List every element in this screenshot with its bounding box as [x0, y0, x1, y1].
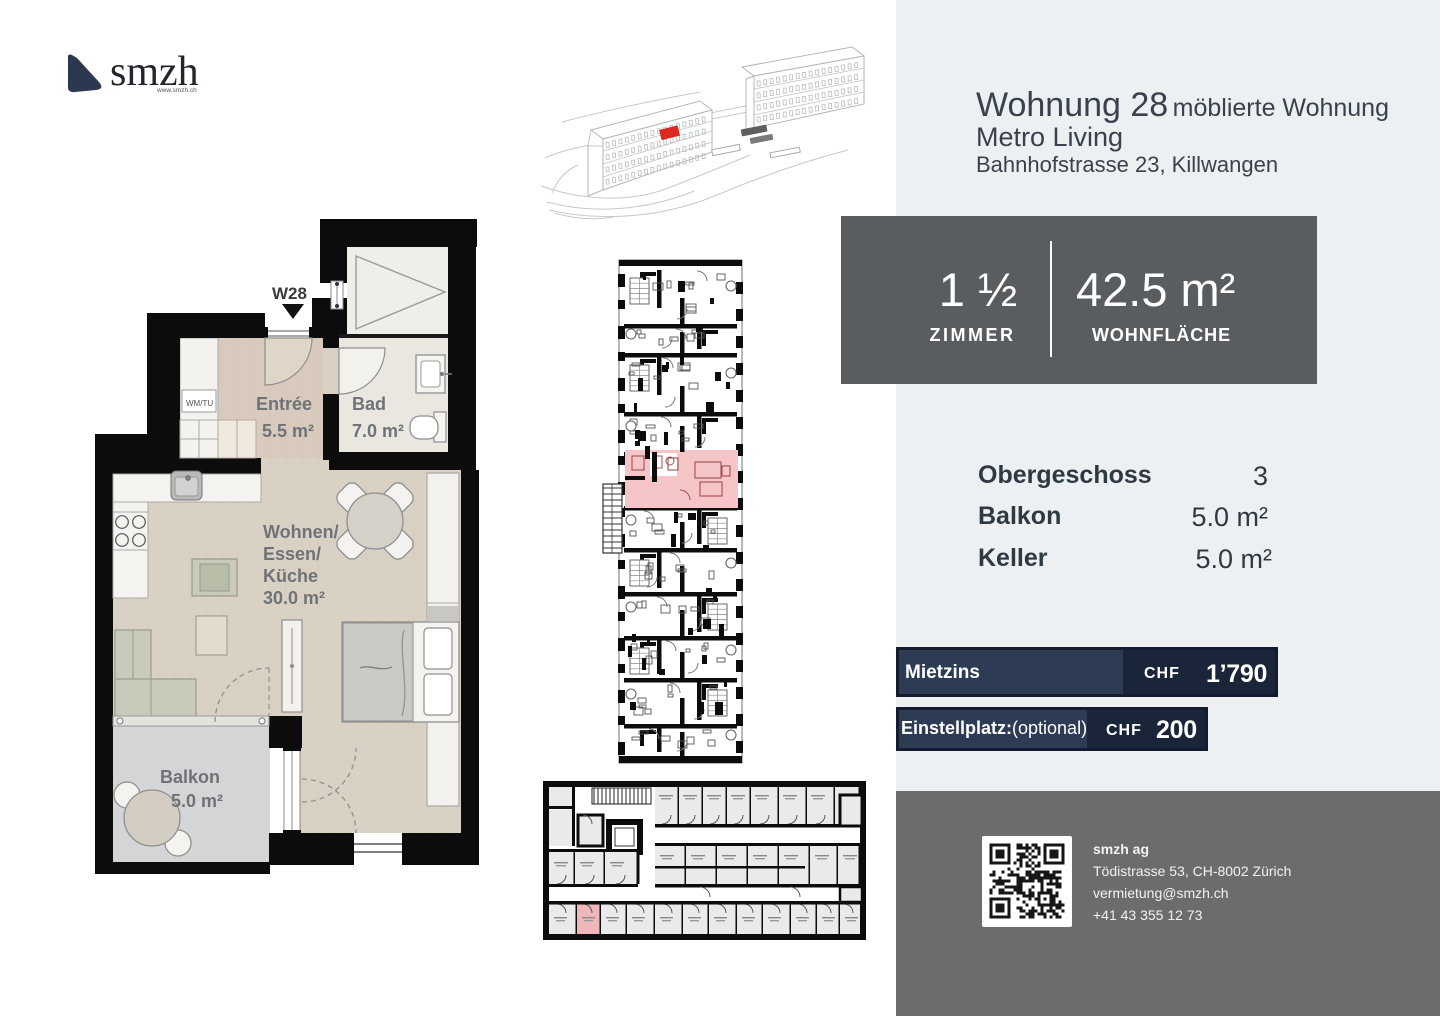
- svg-text:Balkon: Balkon: [160, 767, 220, 787]
- svg-text:Küche: Küche: [263, 566, 318, 586]
- svg-text:7.0 m²: 7.0 m²: [352, 421, 404, 441]
- svg-text:5.0 m²: 5.0 m²: [171, 791, 223, 811]
- svg-text:W28: W28: [272, 284, 307, 303]
- svg-text:Entrée: Entrée: [256, 394, 312, 414]
- svg-text:Essen/: Essen/: [263, 544, 321, 564]
- svg-text:Bad: Bad: [352, 394, 386, 414]
- svg-text:5.5 m²: 5.5 m²: [262, 421, 314, 441]
- svg-text:Wohnen/: Wohnen/: [263, 522, 339, 542]
- svg-text:www.smzh.ch: www.smzh.ch: [156, 87, 197, 94]
- svg-text:30.0 m²: 30.0 m²: [263, 588, 325, 608]
- svg-text:WM/TU: WM/TU: [186, 399, 213, 408]
